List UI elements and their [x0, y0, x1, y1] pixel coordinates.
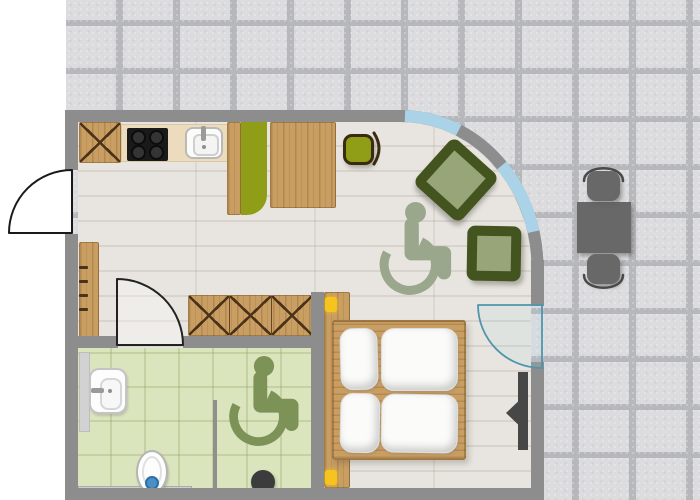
- outdoor-table: [577, 202, 631, 253]
- bed-pillow: [339, 393, 380, 454]
- washbasin-drain-dot: [108, 389, 112, 393]
- sink-basin: [193, 134, 219, 156]
- wall-right-upper: [531, 260, 544, 306]
- bed-pillow: [339, 328, 379, 391]
- reading-lamp: [325, 470, 337, 485]
- stove: [127, 128, 168, 161]
- wardrobe-door-x: [189, 296, 229, 335]
- floor-plan: [0, 0, 700, 500]
- wall-right-lower: [531, 362, 544, 490]
- wall-top: [65, 110, 401, 122]
- cabinet-x-face: [80, 123, 120, 162]
- stove-burner: [149, 130, 164, 145]
- wall-bottom: [65, 488, 544, 500]
- stove-burner: [131, 130, 146, 145]
- bed-duvet: [381, 328, 458, 391]
- wall-left-upper: [65, 110, 78, 170]
- stove-burner: [131, 145, 146, 160]
- outdoor-chair: [587, 254, 620, 284]
- wall-tv-panel: [518, 372, 528, 450]
- bar-stool: [343, 134, 374, 165]
- coat-hook: [79, 280, 88, 283]
- wardrobe-x-front: [188, 295, 313, 336]
- bed-duvet: [381, 393, 459, 453]
- coat-hook: [79, 266, 88, 269]
- stove-burner: [149, 145, 164, 160]
- coat-rack: [79, 242, 99, 337]
- coat-hook: [79, 294, 88, 297]
- wall-room-divider: [311, 292, 324, 488]
- entrance-door: [9, 170, 72, 233]
- wall-left-lower: [65, 234, 78, 500]
- coat-hook: [79, 308, 88, 311]
- wall-bathroom-left: [78, 336, 118, 348]
- outdoor-chair: [587, 171, 620, 201]
- kitchen-faucet: [201, 126, 206, 141]
- wall-bathroom-right: [183, 336, 324, 348]
- bar-counter-olive: [241, 122, 267, 215]
- wardrobe-door-x: [272, 296, 312, 335]
- shower-partition: [213, 400, 217, 497]
- armchair: [467, 226, 522, 282]
- wardrobe-door-x: [230, 296, 270, 335]
- reading-lamp: [325, 297, 337, 312]
- kitchen-x-front-cabinet: [79, 122, 121, 163]
- bar-counter-wood-side: [227, 122, 241, 215]
- kitchen-drain-dot: [202, 145, 206, 149]
- washbasin-basin: [100, 378, 122, 410]
- dining-table: [270, 122, 336, 208]
- washbasin-faucet: [91, 388, 104, 393]
